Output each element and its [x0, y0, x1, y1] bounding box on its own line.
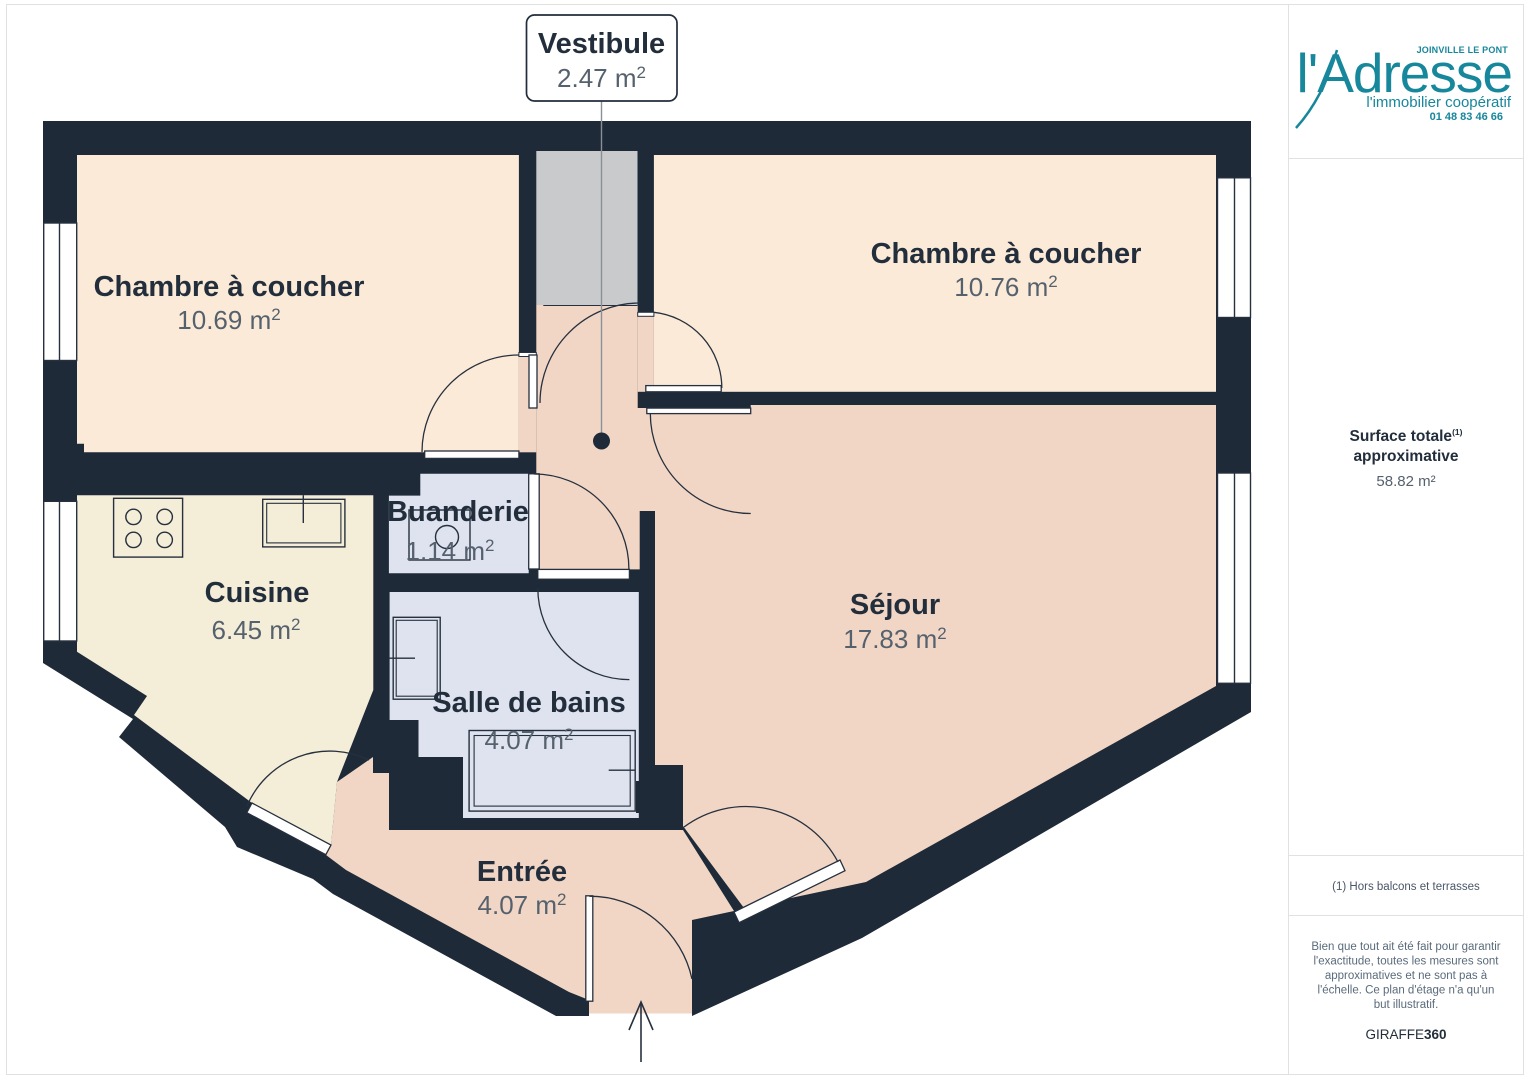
svg-text:58.82 m²: 58.82 m²: [1376, 473, 1435, 490]
svg-text:(1) Hors balcons et terrasses: (1) Hors balcons et terrasses: [1332, 881, 1480, 893]
svg-text:but illustratif.: but illustratif.: [1374, 999, 1439, 1011]
svg-text:17.83 m2: 17.83 m2: [843, 624, 946, 654]
svg-text:approximative: approximative: [1353, 448, 1458, 465]
svg-text:Entrée: Entrée: [477, 856, 567, 888]
svg-text:Salle de bains: Salle de bains: [432, 687, 625, 719]
svg-text:Vestibule: Vestibule: [538, 28, 665, 60]
svg-text:10.76 m2: 10.76 m2: [954, 272, 1057, 302]
svg-text:l'immobilier coopératif: l'immobilier coopératif: [1366, 94, 1511, 111]
svg-text:Surface totale(1): Surface totale(1): [1350, 427, 1463, 445]
svg-text:Chambre à coucher: Chambre à coucher: [871, 238, 1142, 270]
svg-text:Buanderie: Buanderie: [387, 496, 529, 528]
svg-text:Séjour: Séjour: [850, 589, 940, 621]
svg-text:01 48 83 46 66: 01 48 83 46 66: [1430, 111, 1503, 123]
svg-text:Chambre à coucher: Chambre à coucher: [94, 271, 365, 303]
svg-text:l'échelle. Ce plan d'étage n'a: l'échelle. Ce plan d'étage n'a qu'un: [1318, 985, 1495, 997]
svg-text:l'exactitude, toutes les mesur: l'exactitude, toutes les mesures sont: [1313, 956, 1499, 968]
svg-text:4.07 m2: 4.07 m2: [478, 890, 567, 920]
svg-text:approximatives et ne sont pas: approximatives et ne sont pas à: [1325, 970, 1488, 982]
svg-text:1.14 m2: 1.14 m2: [406, 536, 495, 566]
svg-text:Cuisine: Cuisine: [205, 577, 310, 609]
svg-text:10.69 m2: 10.69 m2: [177, 305, 280, 335]
svg-text:2.47 m2: 2.47 m2: [557, 63, 646, 93]
svg-text:Bien que tout ait été fait pou: Bien que tout ait été fait pour garantir: [1311, 941, 1500, 953]
svg-text:GIRAFFE360: GIRAFFE360: [1365, 1027, 1446, 1042]
svg-text:6.45 m2: 6.45 m2: [212, 615, 301, 645]
svg-text:4.07 m2: 4.07 m2: [485, 725, 574, 755]
